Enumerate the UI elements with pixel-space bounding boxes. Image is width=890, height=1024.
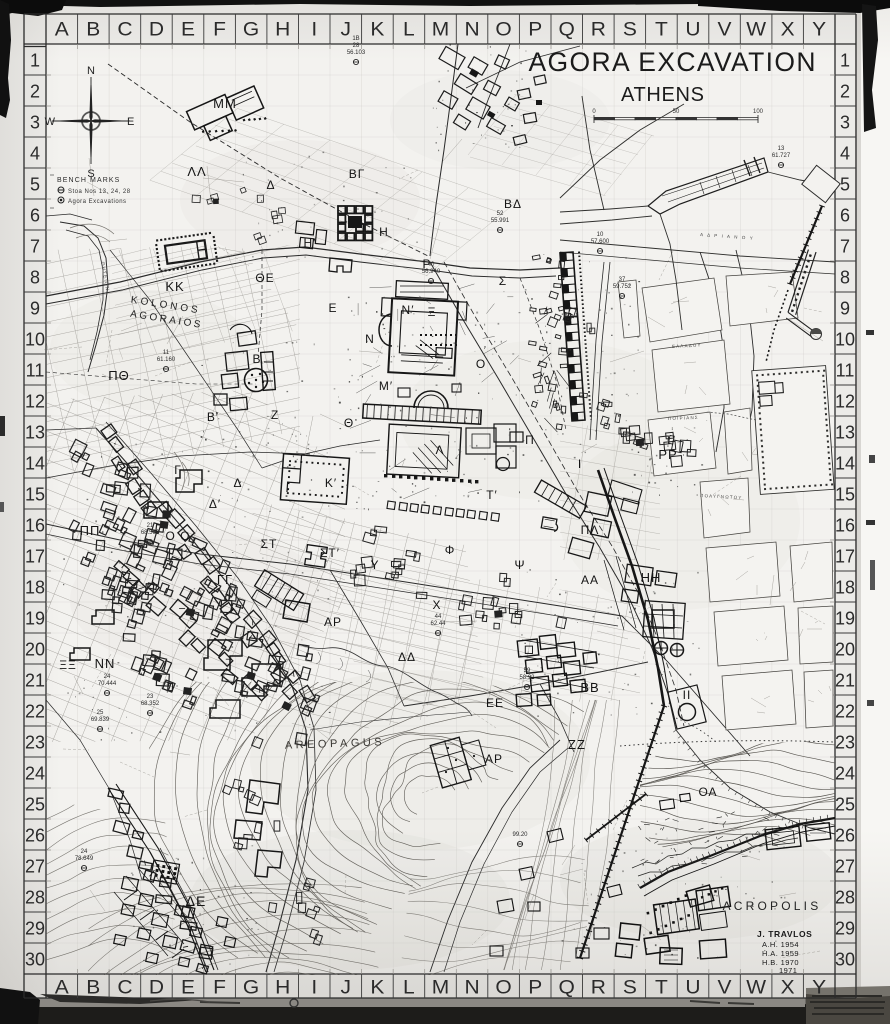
svg-text:30: 30 — [835, 950, 855, 970]
svg-text:56.103: 56.103 — [347, 50, 366, 56]
svg-text:10: 10 — [25, 330, 45, 350]
svg-text:55.991: 55.991 — [491, 218, 510, 224]
svg-text:28: 28 — [353, 43, 360, 49]
svg-text:Η: Η — [379, 225, 389, 239]
svg-text:ΠΠ: ΠΠ — [80, 523, 101, 538]
svg-text:M: M — [432, 19, 449, 40]
svg-text:14: 14 — [835, 454, 855, 474]
svg-text:ΙΙ: ΙΙ — [683, 688, 692, 702]
svg-text:7: 7 — [30, 237, 40, 257]
svg-text:9: 9 — [840, 299, 850, 319]
svg-text:11: 11 — [163, 350, 170, 356]
svg-text:C: C — [117, 977, 132, 998]
svg-text:E: E — [181, 19, 195, 40]
svg-text:Μ′: Μ′ — [379, 379, 393, 393]
svg-text:Agora Excavations: Agora Excavations — [68, 199, 127, 205]
svg-text:H: H — [275, 19, 290, 40]
svg-text:78.649: 78.649 — [75, 856, 94, 862]
svg-text:ΑΡ: ΑΡ — [485, 752, 503, 766]
svg-text:17: 17 — [25, 547, 45, 567]
svg-text:ΔΔ: ΔΔ — [398, 650, 416, 664]
svg-text:Υ: Υ — [370, 558, 379, 572]
svg-text:ΔΕ: ΔΕ — [186, 893, 207, 909]
svg-text:L: L — [403, 19, 415, 40]
svg-text:24: 24 — [81, 849, 88, 855]
svg-text:23: 23 — [147, 694, 154, 700]
svg-text:2: 2 — [840, 82, 850, 102]
svg-text:Ν: Ν — [365, 332, 375, 346]
svg-text:N: N — [87, 65, 95, 77]
svg-text:40: 40 — [428, 262, 435, 268]
svg-text:ΛΛ: ΛΛ — [187, 164, 206, 179]
svg-text:3: 3 — [840, 113, 850, 133]
svg-text:T: T — [655, 977, 668, 998]
svg-text:Ξ: Ξ — [428, 305, 437, 319]
svg-text:29: 29 — [835, 919, 855, 939]
svg-text:W: W — [746, 977, 766, 998]
svg-text:Δ: Δ — [233, 476, 242, 490]
svg-text:100: 100 — [753, 109, 764, 115]
svg-text:D: D — [149, 977, 164, 998]
svg-text:68.352: 68.352 — [141, 701, 160, 707]
svg-text:Y: Y — [812, 977, 826, 998]
svg-text:A.H. 1954: A.H. 1954 — [762, 940, 799, 949]
svg-text:ΠΘ: ΠΘ — [108, 368, 130, 383]
svg-text:Δ′: Δ′ — [209, 497, 221, 511]
svg-text:8: 8 — [840, 268, 850, 288]
svg-text:Χ: Χ — [432, 598, 441, 612]
svg-text:22: 22 — [835, 702, 855, 722]
svg-text:J: J — [341, 977, 351, 998]
svg-text:24: 24 — [25, 764, 45, 784]
svg-text:ATHENS: ATHENS — [621, 84, 707, 106]
svg-text:Σ: Σ — [499, 274, 507, 288]
svg-text:16: 16 — [25, 516, 45, 536]
svg-text:Ψ: Ψ — [514, 558, 525, 572]
svg-text:Y: Y — [812, 19, 826, 40]
svg-text:ΗΗ: ΗΗ — [641, 570, 662, 585]
svg-text:Φ: Φ — [445, 543, 456, 557]
svg-text:O: O — [495, 977, 511, 998]
svg-text:58.92: 58.92 — [519, 675, 535, 681]
svg-text:Stoa Nos 13, 24, 28: Stoa Nos 13, 24, 28 — [68, 189, 131, 195]
svg-text:11: 11 — [26, 361, 45, 381]
svg-text:28: 28 — [25, 888, 45, 908]
svg-text:15: 15 — [835, 485, 855, 505]
svg-text:12: 12 — [835, 392, 855, 412]
svg-text:8: 8 — [30, 268, 40, 288]
svg-text:1: 1 — [840, 51, 850, 71]
svg-text:23: 23 — [835, 733, 855, 753]
svg-text:4: 4 — [30, 144, 40, 164]
svg-text:Κ′: Κ′ — [325, 476, 337, 490]
svg-text:Η′: Η′ — [304, 236, 317, 250]
svg-text:P: P — [528, 19, 542, 40]
svg-text:H.A. 1959: H.A. 1959 — [762, 949, 799, 958]
svg-text:E: E — [181, 977, 195, 998]
svg-text:ΑΡ: ΑΡ — [324, 615, 342, 629]
svg-text:26: 26 — [835, 826, 855, 846]
svg-text:59: 59 — [524, 668, 531, 674]
svg-text:V: V — [717, 977, 732, 998]
svg-text:57.600: 57.600 — [591, 239, 610, 245]
svg-text:Π: Π — [525, 433, 535, 447]
svg-text:18: 18 — [25, 578, 45, 598]
svg-text:U: U — [685, 977, 700, 998]
svg-text:F: F — [213, 977, 226, 998]
svg-text:ΒΔ: ΒΔ — [504, 197, 522, 211]
svg-text:W: W — [746, 19, 766, 40]
svg-text:K: K — [370, 977, 385, 998]
svg-text:24: 24 — [104, 674, 111, 680]
svg-text:ΑΑ: ΑΑ — [581, 573, 599, 587]
svg-text:S: S — [623, 977, 637, 998]
svg-text:Β′: Β′ — [207, 410, 219, 424]
svg-text:F: F — [213, 19, 226, 40]
svg-text:ΜΜ: ΜΜ — [213, 96, 237, 111]
svg-text:ΣΤ′: ΣΤ′ — [320, 546, 340, 560]
svg-text:24: 24 — [835, 764, 855, 784]
svg-text:J: J — [341, 19, 351, 40]
svg-text:17: 17 — [835, 547, 855, 567]
svg-text:ACROPOLIS: ACROPOLIS — [723, 899, 822, 913]
svg-text:1B: 1B — [352, 36, 359, 42]
svg-text:15: 15 — [25, 485, 45, 505]
svg-text:ΝΝ: ΝΝ — [95, 656, 116, 671]
svg-text:Β: Β — [252, 352, 261, 366]
svg-text:Δ: Δ — [266, 178, 275, 192]
svg-text:Ι: Ι — [578, 457, 582, 471]
svg-text:ΡΡ: ΡΡ — [658, 447, 677, 462]
svg-text:2: 2 — [30, 82, 40, 102]
svg-text:H: H — [275, 977, 290, 998]
svg-text:70.444: 70.444 — [98, 681, 117, 687]
svg-text:I: I — [311, 19, 317, 40]
svg-text:29: 29 — [25, 919, 45, 939]
svg-text:23: 23 — [25, 733, 45, 753]
svg-text:V: V — [717, 19, 732, 40]
svg-text:25: 25 — [835, 795, 855, 815]
svg-text:5: 5 — [30, 175, 40, 195]
svg-text:20: 20 — [835, 640, 855, 660]
svg-text:14: 14 — [25, 454, 45, 474]
svg-text:W: W — [45, 116, 56, 128]
svg-text:ΣΤ: ΣΤ — [261, 537, 278, 551]
svg-text:N: N — [465, 19, 480, 40]
svg-text:61.727: 61.727 — [772, 153, 791, 159]
svg-text:U: U — [685, 19, 700, 40]
svg-text:16: 16 — [835, 516, 855, 536]
svg-text:Τ′: Τ′ — [486, 488, 498, 502]
svg-text:25: 25 — [25, 795, 45, 815]
svg-text:28: 28 — [835, 888, 855, 908]
svg-text:AGORA EXCAVATION: AGORA EXCAVATION — [529, 47, 818, 77]
svg-text:ΞΞ: ΞΞ — [59, 658, 77, 672]
svg-text:Λ: Λ — [435, 443, 444, 457]
svg-text:6: 6 — [840, 206, 850, 226]
svg-text:Q: Q — [559, 19, 575, 40]
svg-text:Ε: Ε — [328, 301, 337, 315]
svg-text:21: 21 — [147, 523, 154, 529]
svg-text:ΕΕ: ΕΕ — [486, 696, 504, 710]
svg-text:50: 50 — [673, 109, 680, 115]
svg-text:N: N — [465, 977, 480, 998]
svg-text:G: G — [243, 19, 259, 40]
svg-text:30: 30 — [25, 950, 45, 970]
svg-text:69.839: 69.839 — [91, 717, 110, 723]
svg-text:M: M — [432, 977, 449, 998]
svg-text:19: 19 — [835, 609, 855, 629]
svg-text:I: I — [311, 977, 317, 998]
svg-text:C: C — [117, 19, 132, 40]
svg-text:O: O — [495, 19, 511, 40]
svg-text:1971: 1971 — [779, 966, 797, 975]
svg-text:10: 10 — [835, 330, 855, 350]
svg-text:11: 11 — [836, 361, 855, 381]
svg-text:X: X — [781, 19, 796, 40]
svg-text:59.752: 59.752 — [613, 284, 632, 290]
svg-text:10: 10 — [597, 232, 604, 238]
svg-text:25: 25 — [97, 710, 104, 716]
svg-text:E: E — [127, 116, 134, 128]
svg-text:3: 3 — [30, 113, 40, 133]
svg-text:56.940: 56.940 — [422, 269, 441, 275]
svg-text:B: B — [86, 19, 100, 40]
svg-text:ΚΚ: ΚΚ — [165, 279, 184, 294]
svg-text:18: 18 — [835, 578, 855, 598]
svg-text:R: R — [591, 19, 606, 40]
svg-text:26: 26 — [25, 826, 45, 846]
svg-text:27: 27 — [835, 857, 855, 877]
svg-text:21: 21 — [25, 671, 45, 691]
svg-text:S: S — [623, 19, 637, 40]
svg-text:27: 27 — [25, 857, 45, 877]
svg-text:7: 7 — [840, 237, 850, 257]
svg-text:Ο Ο: Ο Ο — [165, 529, 190, 543]
svg-text:6: 6 — [30, 206, 40, 226]
svg-text:Θ: Θ — [344, 416, 354, 430]
svg-text:19: 19 — [25, 609, 45, 629]
svg-text:X: X — [781, 977, 796, 998]
svg-text:21: 21 — [835, 671, 855, 691]
svg-text:R: R — [591, 977, 606, 998]
svg-text:A: A — [55, 19, 70, 40]
svg-text:99.20: 99.20 — [512, 832, 528, 838]
svg-text:52: 52 — [497, 211, 504, 217]
svg-text:A: A — [55, 977, 70, 998]
svg-text:BENCH MARKS: BENCH MARKS — [57, 177, 120, 184]
svg-text:12: 12 — [25, 392, 45, 412]
svg-text:G: G — [243, 977, 259, 998]
svg-text:K: K — [370, 19, 385, 40]
svg-text:Ν′: Ν′ — [402, 303, 415, 317]
svg-text:4: 4 — [840, 144, 850, 164]
svg-text:T: T — [655, 19, 668, 40]
svg-text:5: 5 — [840, 175, 850, 195]
svg-text:ΒΓ: ΒΓ — [349, 167, 366, 181]
svg-text:B: B — [86, 977, 100, 998]
svg-text:61.160: 61.160 — [157, 357, 176, 363]
svg-text:L: L — [403, 977, 415, 998]
svg-text:62.44: 62.44 — [430, 621, 446, 627]
svg-text:13: 13 — [835, 423, 855, 443]
svg-text:P: P — [528, 977, 542, 998]
svg-text:J. TRAVLOS: J. TRAVLOS — [757, 929, 812, 939]
svg-text:ΒΒ: ΒΒ — [580, 680, 599, 695]
svg-text:13: 13 — [25, 423, 45, 443]
svg-text:20: 20 — [25, 640, 45, 660]
svg-text:ΠΛ: ΠΛ — [581, 523, 600, 537]
svg-text:13: 13 — [778, 146, 785, 152]
svg-text:9: 9 — [30, 299, 40, 319]
svg-text:44: 44 — [435, 614, 442, 620]
svg-text:Γ: Γ — [174, 463, 182, 477]
svg-text:ΖΖ: ΖΖ — [568, 737, 586, 752]
svg-text:D: D — [149, 19, 164, 40]
svg-text:ΓΓ: ΓΓ — [217, 572, 233, 587]
svg-text:22: 22 — [25, 702, 45, 722]
svg-text:ΘΕ: ΘΕ — [255, 271, 274, 285]
svg-text:1: 1 — [30, 51, 40, 71]
svg-text:Ζ: Ζ — [271, 408, 279, 422]
svg-text:68.569: 68.569 — [141, 530, 160, 536]
svg-text:ΟΑ: ΟΑ — [698, 785, 717, 799]
svg-text:Q: Q — [559, 977, 575, 998]
svg-text:Ο: Ο — [476, 357, 486, 371]
svg-text:37: 37 — [619, 277, 626, 283]
